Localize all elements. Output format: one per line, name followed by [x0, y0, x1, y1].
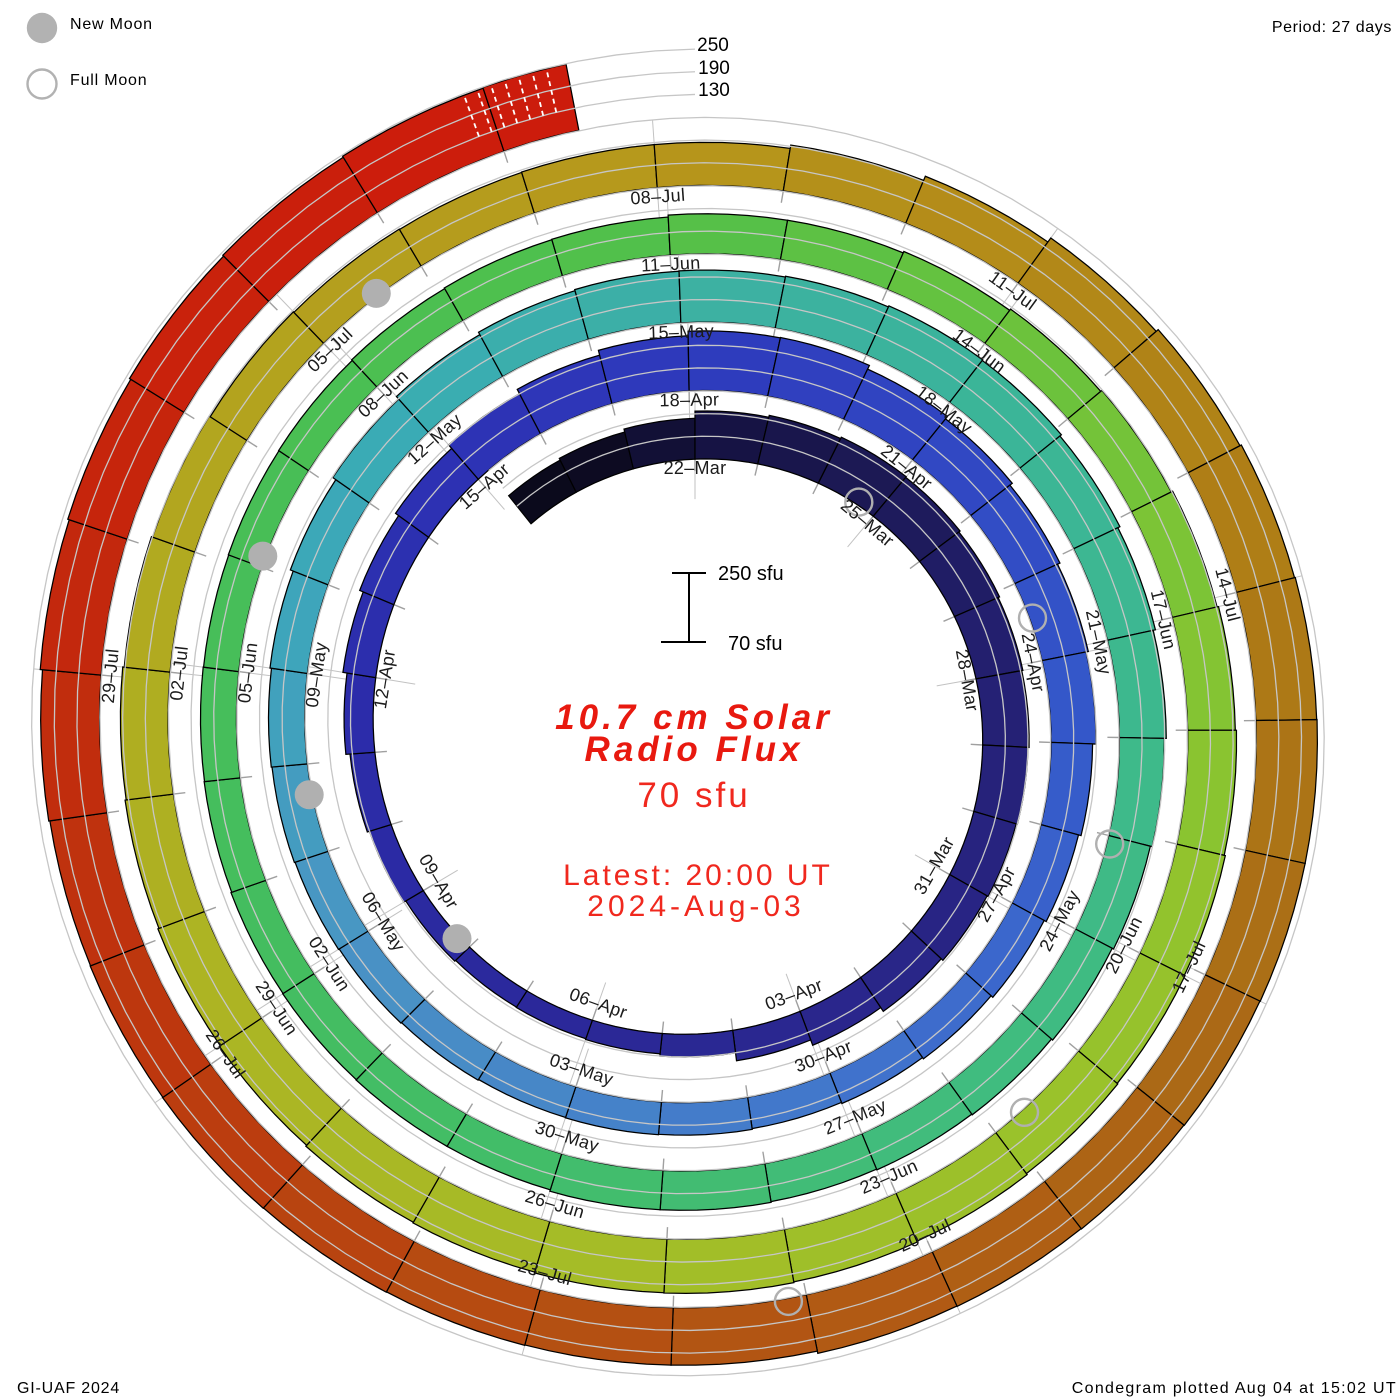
svg-text:15–May: 15–May [648, 321, 715, 343]
svg-text:70 sfu: 70 sfu [637, 776, 750, 815]
svg-text:250: 250 [697, 35, 729, 56]
svg-text:Period: 27 days: Period: 27 days [1272, 19, 1392, 36]
svg-text:GI-UAF 2024: GI-UAF 2024 [17, 1380, 120, 1397]
svg-text:Radio Flux: Radio Flux [585, 730, 804, 769]
svg-text:250 sfu: 250 sfu [718, 563, 784, 585]
svg-text:22–Mar: 22–Mar [664, 458, 727, 478]
svg-text:190: 190 [698, 58, 730, 79]
svg-text:11–Jun: 11–Jun [640, 253, 700, 276]
svg-text:Latest: 20:00 UT: Latest: 20:00 UT [563, 859, 833, 892]
svg-text:New Moon: New Moon [70, 16, 153, 33]
svg-text:18–Apr: 18–Apr [659, 389, 719, 410]
svg-text:2024-Aug-03: 2024-Aug-03 [587, 890, 804, 923]
svg-text:Full Moon: Full Moon [70, 72, 147, 89]
svg-text:130: 130 [698, 80, 730, 101]
svg-text:70 sfu: 70 sfu [728, 633, 782, 655]
svg-text:Condegram plotted Aug 04 at 15: Condegram plotted Aug 04 at 15:02 UT [1072, 1380, 1397, 1397]
svg-text:08–Jul: 08–Jul [630, 185, 686, 209]
